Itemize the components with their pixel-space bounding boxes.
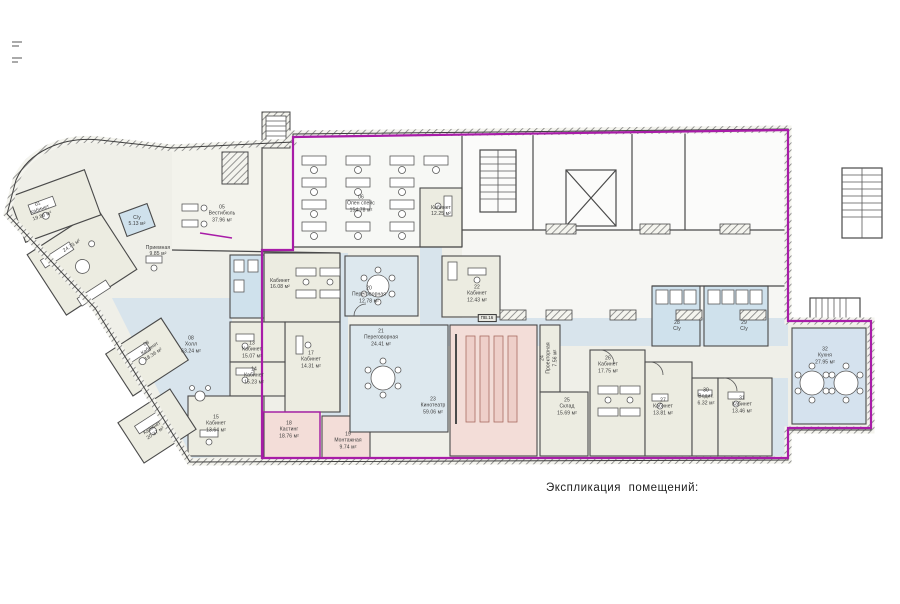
room-label-05: 05Вестибюль37.96 м²: [209, 205, 236, 224]
room-label-30: 30Водит.6.32 м²: [698, 388, 715, 407]
room-label-18: 18Кастинг18.76 м²: [279, 421, 299, 440]
room-label-31: 31Кабинет13.46 м²: [732, 396, 752, 415]
room-label-27: 27Кабинет13.81 м²: [653, 398, 673, 417]
vestibule-shaft: [222, 152, 248, 184]
room-label-24: 24Проекторная7.56 м²: [540, 342, 559, 373]
room-label-32: 32Кухня27.95 м²: [815, 347, 835, 366]
floor-plan-drawing: [0, 0, 900, 604]
room-label-06: 06Опен спейс154.78 м²: [347, 195, 375, 214]
room-label-Приемная: Приемная9.85 м²: [146, 245, 170, 258]
room-label-Кабинет: Кабинет16.08 м²: [270, 278, 290, 291]
stair-b: [842, 168, 882, 238]
legend-caption: Экспликация помещений:: [546, 482, 699, 494]
room-label-08: 08Холл63.24 м²: [181, 336, 201, 355]
room-label-22: 22Кабинет12.43 м²: [467, 285, 487, 304]
room-label-20: 20Переговорная12.78 м²: [352, 286, 386, 305]
plan-tag-ПВ.16: ПВ.16: [478, 314, 497, 322]
room-label-15: 15Кабинет13.64 м²: [206, 415, 226, 434]
room-label-29: 29С/у: [740, 320, 748, 333]
room-label-14: 14Кабинет15.23 м²: [244, 367, 264, 386]
room-label-26: 26Кабинет17.75 м²: [598, 356, 618, 375]
floor-plan-page: 01Кабинет19.86 м²24.73 м²С/у5.13 м²05Вес…: [0, 0, 900, 604]
room-label-25: 25Склад15.69 м²: [557, 398, 577, 417]
room-label-С/у: С/у5.13 м²: [129, 215, 146, 228]
room-label-Кабинет: Кабинет12.25 м²: [431, 205, 451, 218]
room-label-21: 21Переговорная24.41 м²: [364, 329, 398, 348]
room-label-13: 13Кабинет15.07 м²: [242, 341, 262, 360]
room-label-17: 17Кабинет14.31 м²: [301, 351, 321, 370]
room-label-28: 28С/у: [673, 320, 681, 333]
room-label-19: 19Монтажная9.74 м²: [334, 432, 361, 451]
revision-marks: [12, 42, 22, 62]
stair-c: [810, 298, 860, 320]
room-label-23: 23Кинотеатр59.06 м²: [421, 397, 446, 416]
